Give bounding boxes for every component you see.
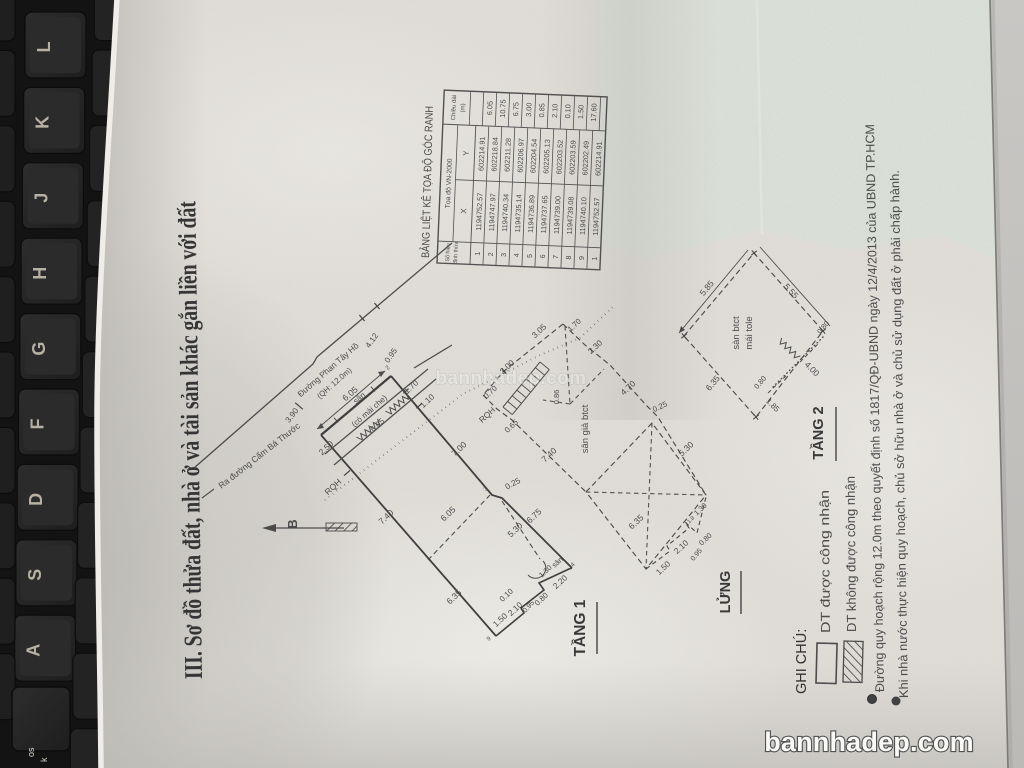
svg-text:602206.97: 602206.97 (515, 138, 525, 173)
svg-text:H: H (30, 267, 50, 280)
svg-text:9: 9 (578, 256, 586, 260)
svg-text:602211.28: 602211.28 (502, 138, 512, 172)
svg-text:3.00: 3.00 (524, 102, 534, 117)
svg-text:TẦNG 2: TẦNG 2 (810, 406, 827, 459)
svg-text:bannhadep.com: bannhadep.com (436, 368, 587, 389)
svg-text:G: G (29, 342, 49, 356)
svg-text:1194739.00: 1194739.00 (552, 196, 563, 234)
svg-text:bannhadep.com: bannhadep.com (764, 727, 974, 757)
svg-text:(m): (m) (460, 103, 466, 112)
svg-text:1194752.57: 1194752.57 (474, 193, 485, 231)
svg-text:A: A (24, 644, 44, 657)
svg-text:1194737.65: 1194737.65 (539, 195, 550, 233)
svg-text:k: k (39, 757, 49, 762)
svg-text:2.10: 2.10 (550, 104, 560, 119)
svg-text:1194735.14: 1194735.14 (513, 194, 524, 232)
svg-text:1: 1 (474, 252, 482, 256)
svg-text:1194739.08: 1194739.08 (565, 196, 576, 234)
svg-text:sân giả btct: sân giả btct (580, 404, 591, 453)
svg-text:1194752.57: 1194752.57 (591, 197, 602, 235)
svg-text:mái tole: mái tole (744, 316, 755, 349)
svg-text:sàn btct: sàn btct (731, 316, 742, 350)
svg-text:602218.84: 602218.84 (489, 137, 499, 172)
svg-text:LỬNG: LỬNG (716, 571, 734, 614)
svg-text:0.86: 0.86 (552, 390, 561, 405)
svg-text:4: 4 (513, 253, 521, 257)
svg-text:10.75: 10.75 (498, 99, 508, 118)
svg-text:os: os (26, 747, 36, 757)
svg-text:1.50: 1.50 (576, 105, 586, 120)
svg-text:L: L (34, 42, 54, 53)
svg-text:S: S (25, 569, 45, 581)
svg-text:602203.59: 602203.59 (567, 140, 577, 175)
svg-text:6.75: 6.75 (511, 102, 521, 117)
svg-text:602204.54: 602204.54 (528, 139, 538, 174)
svg-text:K: K (33, 116, 53, 129)
svg-text:602214.91: 602214.91 (593, 141, 603, 176)
svg-text:2: 2 (487, 252, 495, 256)
svg-text:TẦNG 1: TẦNG 1 (572, 599, 589, 656)
svg-text:J: J (31, 193, 51, 203)
svg-text:602205.13: 602205.13 (541, 139, 551, 174)
svg-text:1194740.34: 1194740.34 (500, 194, 511, 232)
svg-text:602203.52: 602203.52 (554, 140, 564, 175)
svg-text:5: 5 (526, 254, 534, 258)
svg-text:GHI CHÚ:: GHI CHÚ: (793, 629, 810, 694)
svg-text:0.85: 0.85 (537, 103, 547, 118)
svg-text:8: 8 (565, 255, 573, 259)
svg-text:7: 7 (552, 255, 560, 259)
svg-text:0.10: 0.10 (563, 104, 573, 119)
svg-text:F: F (28, 419, 48, 430)
svg-text:17.60: 17.60 (589, 103, 599, 122)
svg-text:6: 6 (539, 254, 547, 258)
svg-text:1: 1 (591, 256, 599, 260)
svg-text:602202.49: 602202.49 (580, 141, 590, 176)
svg-text:6.05: 6.05 (485, 101, 495, 116)
svg-text:đỉnh thửa: đỉnh thửa (452, 241, 460, 264)
svg-text:DT không được công nhận: DT không được công nhận (843, 476, 859, 632)
svg-text:DT được công nhận: DT được công nhận (817, 490, 833, 633)
svg-text:602214.91: 602214.91 (476, 136, 486, 171)
svg-text:B: B (285, 519, 300, 528)
svg-text:D: D (26, 493, 46, 506)
svg-text:3: 3 (500, 253, 508, 257)
svg-text:1194740.10: 1194740.10 (578, 197, 589, 235)
svg-text:1194736.89: 1194736.89 (526, 195, 537, 233)
svg-text:1194747.97: 1194747.97 (487, 193, 498, 231)
svg-text:Chiều dài: Chiều dài (451, 95, 458, 121)
